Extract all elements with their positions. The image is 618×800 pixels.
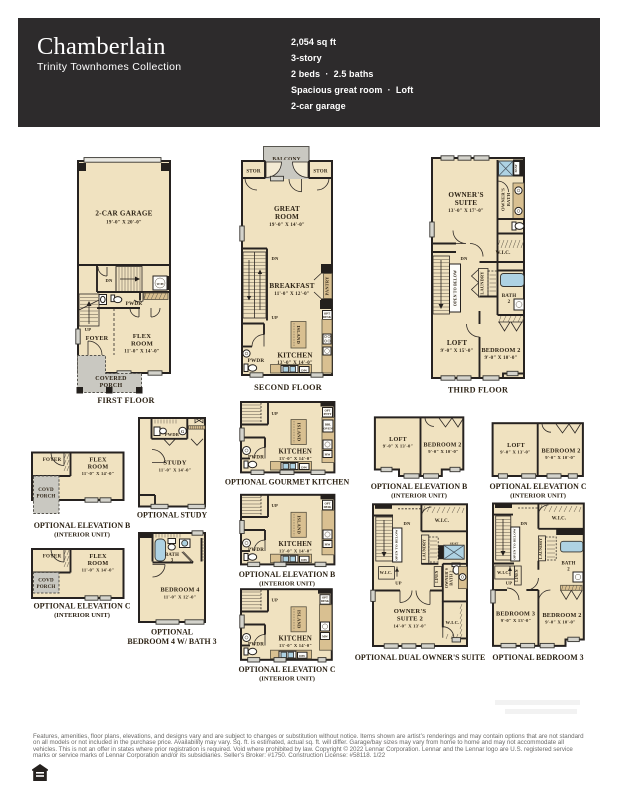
svg-text:W.I.C.: W.I.C. (446, 620, 460, 625)
svg-text:BEDROOM 4 W/ BATH 3: BEDROOM 4 W/ BATH 3 (127, 637, 216, 646)
svg-text:DESK: DESK (321, 599, 330, 603)
svg-text:ISLAND: ISLAND (296, 516, 301, 535)
svg-text:UP: UP (272, 315, 279, 320)
svg-text:11'-0″ X 12'-0″: 11'-0″ X 12'-0″ (164, 595, 197, 600)
svg-text:KITCHEN: KITCHEN (279, 636, 313, 643)
svg-text:FOYER: FOYER (43, 458, 62, 463)
svg-text:11'-0″ X 14'-0″: 11'-0″ X 14'-0″ (159, 468, 192, 473)
svg-text:UP: UP (272, 598, 279, 603)
svg-text:DW: DW (301, 558, 307, 562)
svg-text:DW: DW (299, 654, 305, 658)
svg-text:OPTIONAL DUAL OWNER'S SUITE: OPTIONAL DUAL OWNER'S SUITE (355, 653, 485, 662)
svg-text:STUDY: STUDY (163, 460, 186, 467)
svg-text:ROOM: ROOM (131, 341, 154, 348)
svg-text:BEDROOM 2: BEDROOM 2 (424, 443, 462, 449)
svg-text:(INTERIOR UNIT): (INTERIOR UNIT) (510, 493, 566, 500)
svg-text:ISLAND: ISLAND (296, 423, 301, 442)
svg-text:BATH: BATH (506, 193, 511, 207)
svg-text:GREAT: GREAT (274, 205, 300, 213)
svg-text:LOFT: LOFT (447, 339, 467, 347)
svg-text:UP: UP (395, 581, 402, 586)
svg-text:OPTIONAL ELEVATION C: OPTIONAL ELEVATION C (238, 665, 335, 674)
svg-text:OPTIONAL ELEVATION B: OPTIONAL ELEVATION B (371, 482, 468, 491)
svg-text:COVD: COVD (38, 488, 54, 493)
svg-text:KITCHEN: KITCHEN (279, 541, 313, 548)
svg-text:13'-0″ X 17'-0″: 13'-0″ X 17'-0″ (448, 209, 484, 214)
svg-text:FOYER: FOYER (43, 555, 62, 560)
svg-text:13'-0″ X 14'-0″: 13'-0″ X 14'-0″ (279, 643, 312, 648)
svg-text:PWDR: PWDR (165, 432, 180, 437)
svg-text:UP: UP (506, 581, 513, 586)
svg-text:DESK: DESK (324, 505, 333, 509)
svg-text:BEDROOM 3: BEDROOM 3 (496, 611, 535, 618)
svg-text:PORCH: PORCH (36, 495, 55, 500)
svg-text:OPTIONAL ELEVATION C: OPTIONAL ELEVATION C (489, 482, 586, 491)
svg-text:LAUNDRY: LAUNDRY (421, 539, 426, 560)
svg-text:LOFT: LOFT (507, 442, 525, 449)
svg-text:DN: DN (272, 256, 280, 261)
svg-text:ROOM: ROOM (88, 560, 109, 567)
svg-text:UP: UP (272, 503, 279, 508)
svg-text:9'-0″ X 13'-0″: 9'-0″ X 13'-0″ (383, 443, 414, 448)
svg-text:KITCHEN: KITCHEN (279, 449, 313, 456)
svg-text:(INTERIOR UNIT): (INTERIOR UNIT) (259, 581, 315, 588)
svg-text:SECOND FLOOR: SECOND FLOOR (254, 383, 322, 392)
svg-text:BEDROOM 4: BEDROOM 4 (160, 587, 199, 594)
svg-text:DW: DW (301, 369, 307, 373)
svg-text:9'-0″ X 15'-0″: 9'-0″ X 15'-0″ (440, 349, 473, 354)
svg-text:PWDR: PWDR (248, 548, 264, 553)
svg-text:PWDR: PWDR (248, 643, 264, 648)
svg-text:DESK: DESK (323, 315, 332, 319)
svg-text:FLEX: FLEX (133, 333, 151, 340)
svg-text:11'-0″ X 12'-0″: 11'-0″ X 12'-0″ (274, 292, 310, 297)
svg-text:14'-0″ X 13'-0″: 14'-0″ X 13'-0″ (393, 624, 426, 629)
svg-text:PNTY: PNTY (324, 412, 333, 416)
svg-text:LAUNDRY: LAUNDRY (538, 538, 543, 559)
svg-text:OPTIONAL STUDY: OPTIONAL STUDY (137, 511, 208, 520)
svg-text:G: G (181, 429, 184, 434)
svg-text:9'-0″ X 13'-0″: 9'-0″ X 13'-0″ (500, 449, 531, 454)
svg-text:BEDROOM 2: BEDROOM 2 (481, 347, 520, 354)
svg-text:BREAKFAST: BREAKFAST (269, 282, 314, 290)
svg-text:LINEN: LINEN (515, 569, 519, 582)
svg-text:SUITE: SUITE (455, 199, 478, 207)
svg-text:9'-0″ X 10'-0″: 9'-0″ X 10'-0″ (545, 620, 576, 625)
svg-text:BATH 2: BATH 2 (449, 570, 454, 585)
svg-text:2: 2 (567, 568, 570, 573)
svg-text:UP: UP (272, 411, 279, 416)
svg-text:STOR: STOR (246, 170, 261, 175)
svg-text:(INTERIOR UNIT): (INTERIOR UNIT) (54, 612, 110, 619)
svg-text:OPTIONAL: OPTIONAL (151, 628, 193, 637)
svg-text:LOFT: LOFT (389, 436, 407, 443)
svg-text:2-CAR GARAGE: 2-CAR GARAGE (95, 210, 152, 218)
svg-text:PORCH: PORCH (100, 383, 123, 389)
svg-text:OWNER'S: OWNER'S (501, 188, 506, 211)
svg-text:PORCH: PORCH (36, 585, 55, 590)
svg-text:COVERED: COVERED (95, 376, 127, 382)
svg-text:(INTERIOR UNIT): (INTERIOR UNIT) (259, 675, 315, 682)
svg-text:(INTERIOR UNIT): (INTERIOR UNIT) (54, 532, 110, 539)
svg-text:FIRST FLOOR: FIRST FLOOR (97, 396, 154, 405)
svg-text:OPTIONAL ELEVATION B: OPTIONAL ELEVATION B (34, 521, 131, 530)
svg-text:OWNER'S: OWNER'S (394, 608, 427, 615)
svg-text:9'-0″ X 10'-0″: 9'-0″ X 10'-0″ (484, 356, 517, 361)
svg-text:W.I.C.: W.I.C. (380, 570, 393, 575)
svg-text:PWDR: PWDR (248, 358, 265, 364)
svg-text:DN: DN (460, 256, 468, 261)
svg-text:DN: DN (403, 521, 411, 526)
svg-text:ROOM: ROOM (275, 213, 299, 221)
svg-text:OPTIONAL ELEVATION C: OPTIONAL ELEVATION C (33, 602, 130, 611)
svg-text:W.I.C.: W.I.C. (552, 517, 567, 522)
svg-text:13'-0″ X 14'-0″: 13'-0″ X 14'-0″ (279, 548, 312, 553)
svg-text:BATH: BATH (561, 562, 575, 567)
svg-text:MW: MW (322, 635, 328, 639)
svg-text:THIRD FLOOR: THIRD FLOOR (448, 386, 508, 395)
svg-text:MW: MW (325, 543, 331, 547)
svg-text:STOR: STOR (313, 170, 328, 175)
svg-text:OPTIONAL BEDROOM 3: OPTIONAL BEDROOM 3 (492, 653, 583, 662)
svg-text:LAUNDRY: LAUNDRY (480, 271, 485, 295)
svg-text:OPEN TO BELOW: OPEN TO BELOW (513, 528, 517, 560)
svg-text:19'-0″ X 20'-0″: 19'-0″ X 20'-0″ (106, 221, 142, 226)
svg-text:SEAT: SEAT (514, 163, 518, 172)
svg-text:OPTIONAL ELEVATION B: OPTIONAL ELEVATION B (239, 570, 336, 579)
svg-text:OPEN TO BELOW: OPEN TO BELOW (453, 270, 458, 306)
svg-text:FLEX: FLEX (89, 457, 107, 464)
svg-text:BATH: BATH (502, 294, 517, 299)
svg-text:ISLAND: ISLAND (296, 610, 301, 629)
svg-text:OPTIONAL GOURMET KITCHEN: OPTIONAL GOURMET KITCHEN (225, 478, 350, 487)
svg-text:11'-0″ X 14'-0″: 11'-0″ X 14'-0″ (82, 568, 115, 573)
svg-text:9'-0″ X 10'-0″: 9'-0″ X 10'-0″ (545, 455, 576, 460)
svg-text:OPEN TO BELOW: OPEN TO BELOW (395, 529, 399, 561)
svg-text:BEDROOM 2: BEDROOM 2 (541, 448, 580, 455)
svg-text:BEDROOM 2: BEDROOM 2 (542, 612, 581, 619)
svg-text:13'-0″ X 14'-0″: 13'-0″ X 14'-0″ (279, 456, 312, 461)
svg-text:11'-0″ X 14'-0″: 11'-0″ X 14'-0″ (82, 471, 115, 476)
svg-text:9'-0″ X 13'-0″: 9'-0″ X 13'-0″ (501, 618, 532, 623)
svg-text:UP: UP (85, 327, 92, 332)
svg-text:LINEN: LINEN (435, 570, 439, 583)
svg-text:OVEN: OVEN (324, 427, 334, 431)
svg-text:COVD: COVD (38, 579, 54, 584)
svg-text:W/H: W/H (157, 282, 164, 286)
svg-text:W.I.C.: W.I.C. (497, 570, 510, 575)
svg-text:ISLAND: ISLAND (296, 326, 301, 345)
svg-text:11'-0″ X 14'-0″: 11'-0″ X 14'-0″ (124, 350, 160, 355)
svg-text:DW: DW (301, 466, 307, 470)
svg-text:KITCHEN: KITCHEN (277, 352, 313, 360)
svg-text:MW: MW (325, 453, 331, 457)
svg-text:ROOM: ROOM (88, 464, 109, 471)
svg-text:DN: DN (105, 278, 113, 283)
svg-text:2: 2 (508, 300, 511, 305)
svg-text:3: 3 (171, 559, 174, 564)
svg-text:19'-0″ X 14'-0″: 19'-0″ X 14'-0″ (269, 223, 305, 228)
svg-text:DN: DN (520, 521, 528, 526)
svg-text:W.I.C.: W.I.C. (495, 251, 511, 256)
svg-text:SUITE 2: SUITE 2 (397, 616, 424, 623)
svg-text:FLEX: FLEX (89, 553, 107, 560)
svg-text:(INTERIOR UNIT): (INTERIOR UNIT) (391, 493, 447, 500)
svg-text:PANTRY: PANTRY (325, 276, 330, 296)
svg-text:OWNER'S: OWNER'S (448, 191, 483, 199)
svg-text:9'-0″ X 10'-0″: 9'-0″ X 10'-0″ (428, 449, 459, 454)
svg-text:BATH: BATH (165, 553, 179, 558)
svg-text:W.I.C.: W.I.C. (435, 519, 450, 524)
svg-text:PWDR: PWDR (248, 456, 264, 461)
